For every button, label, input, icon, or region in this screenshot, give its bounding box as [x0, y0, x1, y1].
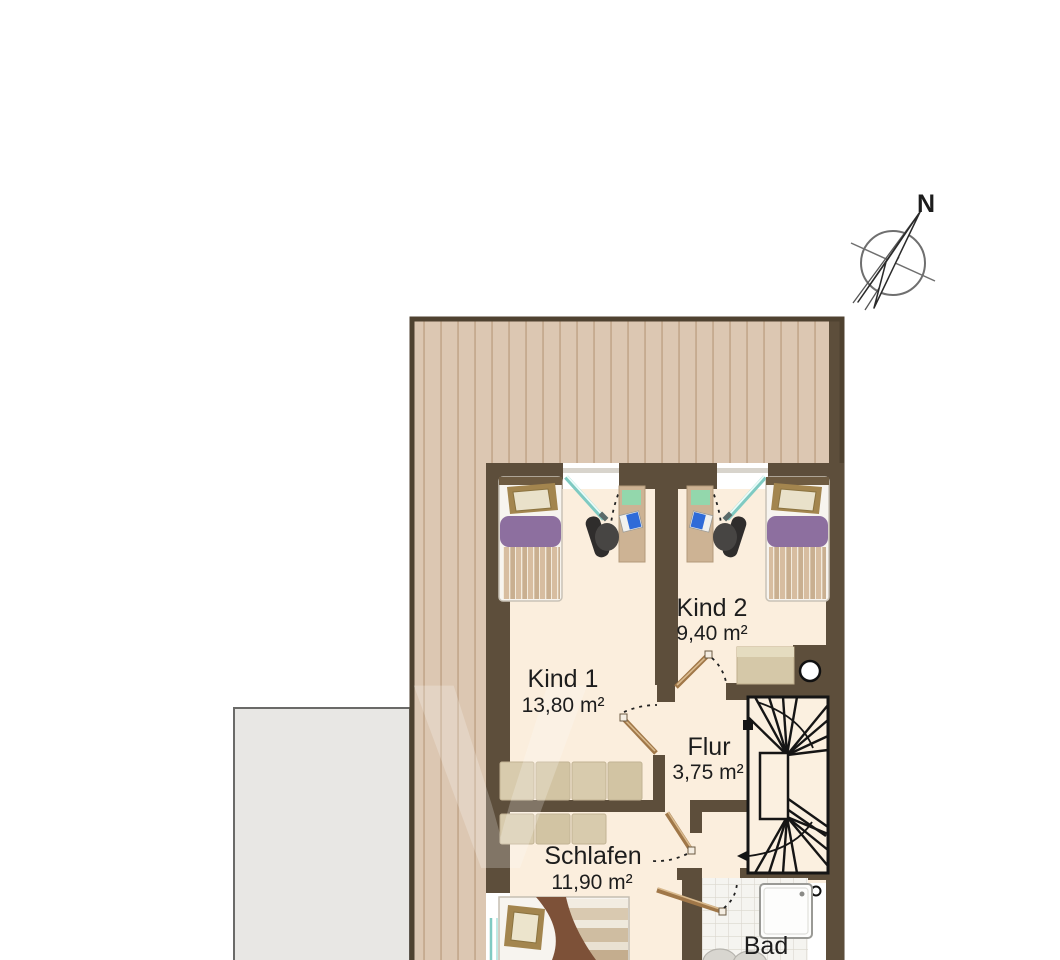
wall-top-b: [619, 463, 717, 489]
dresser-kind2: [737, 647, 794, 684]
wall-kids-divider: [655, 489, 678, 685]
wall-return-flur: [653, 755, 665, 800]
desk-pad: [691, 490, 710, 505]
label-bad: Bad: [744, 932, 788, 960]
desk-pad: [622, 490, 641, 505]
chair-seat: [595, 523, 619, 551]
chimney-flue: [800, 661, 820, 681]
wall-bad-left: [682, 878, 702, 960]
floorplan-page: V Kind 1 13,80 m² Kind 2 9,40 m² Flur 3,…: [0, 0, 1060, 960]
label-kind1: Kind 1: [528, 665, 599, 693]
chair-seat: [713, 523, 737, 551]
label-kind2: Kind 2: [677, 594, 748, 622]
bed-kind1: [499, 477, 562, 601]
area-kind2: 9,40 m²: [676, 622, 747, 645]
wall-nib-schlafen-door: [690, 800, 702, 833]
compass-needle-icon: [874, 212, 920, 308]
area-kind1: 13,80 m²: [522, 694, 605, 717]
area-schlafen: 11,90 m²: [551, 871, 632, 894]
wall-nib-flur: [657, 685, 675, 702]
door-cap: [620, 714, 627, 721]
door-cap: [688, 847, 695, 854]
compass-rose: N: [851, 190, 935, 310]
stair-newel: [760, 753, 788, 819]
north-label: N: [917, 190, 935, 218]
shower-tray: [760, 884, 812, 938]
area-flur: 3,75 m²: [672, 761, 743, 784]
bed-kind2: [766, 477, 829, 601]
window-glass-right: [717, 468, 768, 473]
door-cap: [719, 908, 726, 915]
flat-roof-terrace: [234, 708, 410, 960]
staircase: [737, 697, 828, 873]
label-schlafen: Schlafen: [544, 842, 641, 870]
shower-drain: [800, 892, 805, 897]
label-flur: Flur: [687, 733, 730, 761]
stair-post: [743, 720, 753, 730]
window-glass-left: [563, 468, 619, 473]
floorplan-canvas: V Kind 1 13,80 m² Kind 2 9,40 m² Flur 3,…: [0, 0, 1060, 960]
door-cap: [705, 651, 712, 658]
